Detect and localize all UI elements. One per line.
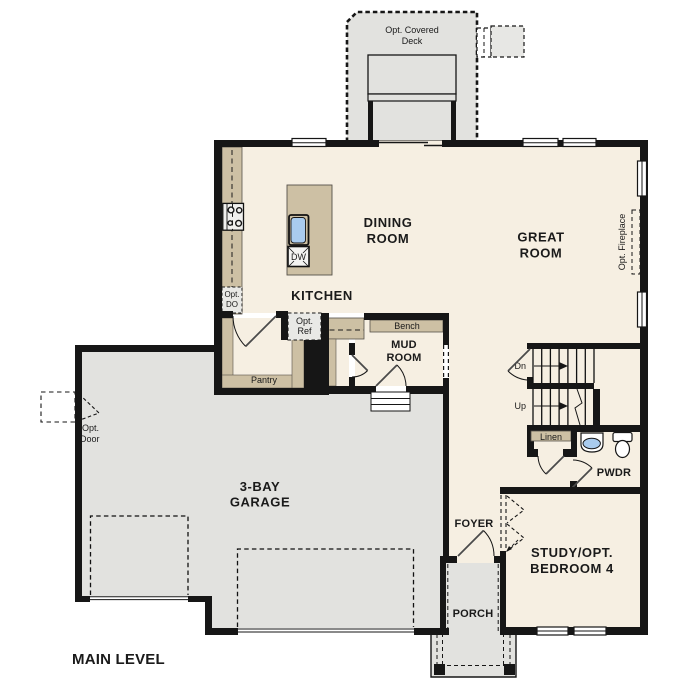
svg-text:FOYER: FOYER	[455, 518, 494, 530]
svg-text:Opt.: Opt.	[296, 316, 313, 326]
svg-text:3-BAY: 3-BAY	[240, 479, 281, 494]
svg-text:DINING: DINING	[364, 215, 413, 230]
svg-text:Opt.: Opt.	[82, 423, 99, 433]
svg-text:Opt. Covered: Opt. Covered	[385, 25, 439, 35]
svg-text:Ref: Ref	[297, 326, 312, 336]
svg-text:ROOM: ROOM	[367, 231, 410, 246]
svg-text:ROOM: ROOM	[520, 246, 563, 261]
svg-text:MUD: MUD	[391, 339, 417, 351]
svg-text:PWDR: PWDR	[597, 467, 631, 479]
svg-text:STUDY/OPT.: STUDY/OPT.	[531, 545, 613, 560]
svg-text:ROOM: ROOM	[386, 352, 421, 364]
svg-text:Deck: Deck	[402, 36, 423, 46]
svg-text:MAIN LEVEL: MAIN LEVEL	[72, 651, 165, 668]
svg-text:Up: Up	[514, 401, 526, 411]
svg-text:KITCHEN: KITCHEN	[291, 288, 353, 303]
svg-text:DO: DO	[226, 300, 238, 309]
svg-text:Pantry: Pantry	[251, 375, 278, 385]
svg-text:Opt. Fireplace: Opt. Fireplace	[617, 214, 627, 271]
svg-text:PORCH: PORCH	[453, 608, 494, 620]
svg-text:DW: DW	[291, 252, 306, 262]
svg-text:BEDROOM 4: BEDROOM 4	[530, 561, 614, 576]
svg-text:Bench: Bench	[394, 321, 420, 331]
svg-text:Door: Door	[80, 434, 100, 444]
svg-text:Linen: Linen	[540, 432, 562, 442]
svg-text:GREAT: GREAT	[517, 230, 564, 245]
svg-text:Opt.: Opt.	[224, 290, 239, 299]
svg-text:GARAGE: GARAGE	[230, 495, 290, 510]
